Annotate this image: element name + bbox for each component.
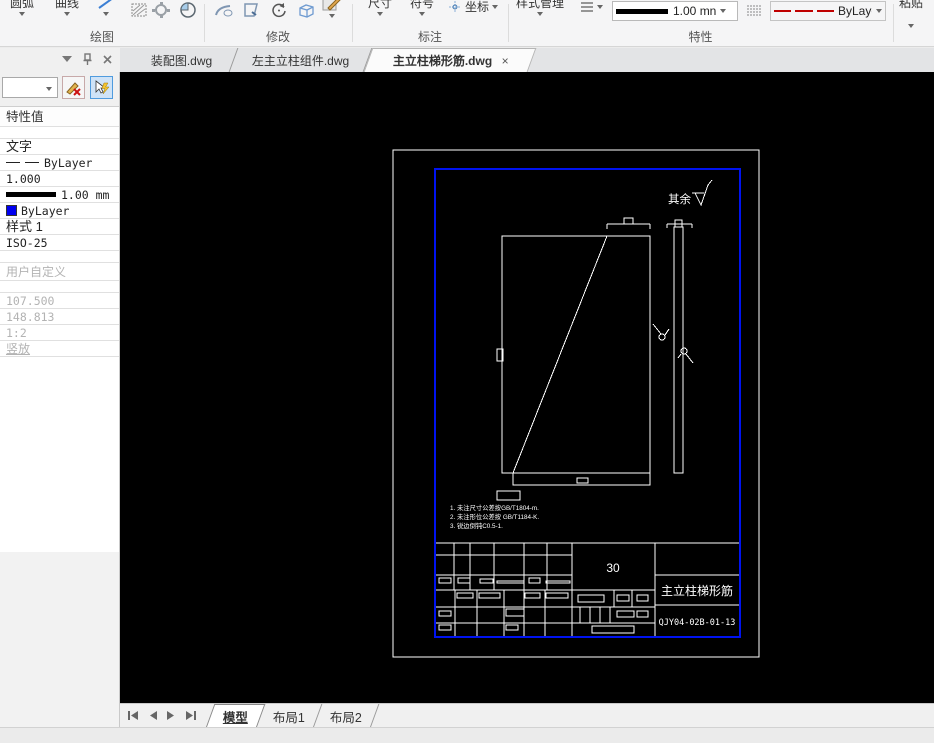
property-row-linetype-scale[interactable]: 1.000 xyxy=(0,171,119,187)
linetype-value: ByLayer xyxy=(838,4,872,18)
property-value: 148.813 xyxy=(6,309,54,325)
arc-button-label: 圆弧 xyxy=(10,0,34,10)
cad-drawing: 其余 1. 未注尺寸公差按GB/T1804-m. 2. 未注形位公差按 GB/T… xyxy=(120,72,934,703)
palette-empty-area xyxy=(0,552,119,727)
paste-button-label: 粘贴 xyxy=(899,0,923,10)
layout-tab-label: 布局2 xyxy=(330,706,362,725)
style-manager-button[interactable]: 样式管理 xyxy=(516,0,564,16)
doc-tab-trapezoid-rib[interactable]: 主立柱梯形筋.dwg × xyxy=(364,48,537,72)
trim-button[interactable] xyxy=(242,2,262,22)
doc-tab-left-column[interactable]: 左主立柱组件.dwg xyxy=(230,48,373,72)
multiline-icon xyxy=(746,4,762,17)
3d-box-button[interactable] xyxy=(296,2,317,22)
curve-button[interactable]: 曲线 xyxy=(55,0,79,16)
pin-icon[interactable] xyxy=(83,53,92,65)
property-row-blank xyxy=(0,281,119,293)
property-value: 竖放 xyxy=(6,341,30,357)
tab-layout1[interactable]: 布局1 xyxy=(257,704,323,728)
ribbon-group-properties: 样式管理 1.00 mn ByLayer 特性 xyxy=(508,0,893,47)
region-button[interactable] xyxy=(152,2,170,21)
property-row-blank xyxy=(0,251,119,263)
lineweight-dropdown[interactable]: 1.00 mn xyxy=(612,1,738,21)
chevron-down-icon xyxy=(876,9,882,13)
last-tab-icon[interactable] xyxy=(185,711,196,720)
document-tab-bar: 装配图.dwg 左主立柱组件.dwg 主立柱梯形筋.dwg × xyxy=(120,48,934,72)
status-bar xyxy=(0,727,934,743)
symbol-button-label: 符号 xyxy=(410,0,434,10)
edit-polyline-button[interactable] xyxy=(322,0,342,18)
property-row-blank xyxy=(0,127,119,139)
fillet-icon xyxy=(214,2,234,19)
dimension-button-label: 尺寸 xyxy=(368,0,392,10)
linetype-dash xyxy=(795,10,812,12)
selection-filter-combobox[interactable] xyxy=(2,77,58,98)
chevron-down-icon xyxy=(419,12,425,16)
next-tab-icon[interactable] xyxy=(167,711,175,720)
palette-menu-chevron-icon[interactable] xyxy=(62,56,72,62)
modify-group-label: 修改 xyxy=(204,28,352,45)
property-grid-empty xyxy=(0,357,119,567)
property-row-custom-2[interactable]: 148.813 xyxy=(0,309,119,325)
property-value: 样式 1 xyxy=(6,219,43,235)
property-value: ByLayer xyxy=(21,203,69,219)
cursor-lightning-icon xyxy=(93,80,110,96)
note-line-2: 2. 未注形位公差按 GB/T1184-K. xyxy=(450,512,539,521)
property-value: ISO-25 xyxy=(6,235,48,251)
gear-icon xyxy=(152,2,170,18)
note-line-1: 1. 未注尺寸公差按GB/T1804-m. xyxy=(450,503,539,512)
list-lines-icon xyxy=(580,1,594,13)
lineweight-value: 1.00 mn xyxy=(673,4,716,18)
linetype-dash xyxy=(774,10,791,12)
tab-layout2[interactable]: 布局2 xyxy=(314,704,380,728)
lineweight-swatch xyxy=(616,9,668,14)
ribbon-group-paste: 粘贴 xyxy=(893,0,934,47)
property-value: 1.00 mm xyxy=(61,187,109,203)
chevron-down-icon xyxy=(103,12,109,16)
palette-title-bar xyxy=(0,48,120,72)
symbol-button[interactable]: 符号 xyxy=(410,0,434,16)
tab-model[interactable]: 模型 xyxy=(206,704,266,728)
doc-tab-label: 装配图.dwg xyxy=(141,52,222,69)
ribbon-group-annotate: 尺寸 符号 坐标 标注 xyxy=(352,0,508,47)
dimension-button[interactable]: 尺寸 xyxy=(368,0,392,16)
properties-palette: 特性值 文字 ByLayer 1.000 1.00 mm ByLayer 样式 … xyxy=(0,72,120,727)
layout-tab-label: 模型 xyxy=(223,707,248,726)
quick-select-button[interactable] xyxy=(90,76,113,99)
doc-tab-label: 主立柱梯形筋.dwg xyxy=(383,52,502,69)
paper-outer-frame xyxy=(393,150,759,657)
hatch-icon xyxy=(130,2,148,18)
ribbon-toolbar: 圆弧 曲线 绘图 xyxy=(0,0,934,47)
chevron-down-icon xyxy=(597,5,603,9)
revision-cloud-button[interactable] xyxy=(178,2,198,22)
ribbon-group-draw: 圆弧 曲线 绘图 xyxy=(0,0,204,47)
property-value: 107.500 xyxy=(6,293,54,309)
pencil-x-icon xyxy=(65,80,82,96)
model-space-canvas[interactable]: 其余 1. 未注尺寸公差按GB/T1804-m. 2. 未注形位公差按 GB/T… xyxy=(120,72,934,703)
cad-application-window: 圆弧 曲线 绘图 xyxy=(0,0,934,743)
note-line-3: 3. 锐边倒钝C0.5-1. xyxy=(450,521,503,530)
property-label: 文字 xyxy=(6,139,32,155)
property-value: 1:2 xyxy=(6,325,27,341)
property-grid-header: 特性值 xyxy=(0,107,119,127)
property-row-lineweight[interactable]: 1.00 mm xyxy=(0,187,119,203)
property-value: ByLayer xyxy=(44,155,92,171)
clear-edit-button[interactable] xyxy=(62,76,85,99)
drawing-blue-frame xyxy=(435,169,740,637)
line-icon xyxy=(97,0,115,10)
linetype-dash xyxy=(817,10,834,12)
lineweight-bar xyxy=(6,192,56,197)
main-view-diagonal xyxy=(513,236,607,473)
first-tab-icon[interactable] xyxy=(128,711,139,720)
arc-button[interactable]: 圆弧 xyxy=(10,0,34,16)
property-row-custom-3[interactable]: 1:2 xyxy=(0,325,119,341)
chevron-down-icon xyxy=(720,9,726,13)
layer-list-button[interactable] xyxy=(580,1,603,13)
chevron-down-icon xyxy=(908,24,914,28)
property-grid: 特性值 文字 ByLayer 1.000 1.00 mm ByLayer 样式 … xyxy=(0,106,119,567)
coordinate-button[interactable]: 坐标 xyxy=(448,0,498,14)
property-row-custom-header: 用户自定义 xyxy=(0,263,119,281)
linetype-dash xyxy=(6,162,20,163)
palette-toolbar xyxy=(0,74,120,102)
line-button[interactable] xyxy=(97,0,115,16)
fillet-button[interactable] xyxy=(214,2,234,22)
property-row-text-category[interactable]: 文字 xyxy=(0,139,119,155)
linetype-dropdown[interactable]: ByLayer xyxy=(770,1,886,21)
layout-tab-label: 布局1 xyxy=(273,706,305,725)
rotate-button[interactable] xyxy=(270,2,289,22)
chevron-down-icon xyxy=(377,12,383,16)
pie-icon xyxy=(178,2,198,19)
doc-tab-label: 左主立柱组件.dwg xyxy=(242,52,359,69)
part-name-text: 主立柱梯形筋 xyxy=(661,583,733,598)
property-label: 用户自定义 xyxy=(6,263,66,281)
property-row-custom-1[interactable]: 107.500 xyxy=(0,293,119,309)
property-row-linetype[interactable]: ByLayer xyxy=(0,155,119,171)
layout-tab-strip: 模型 布局1 布局2 xyxy=(120,703,934,727)
color-swatch xyxy=(6,205,17,216)
chevron-down-icon xyxy=(46,87,52,91)
coordinate-button-label: 坐标 xyxy=(465,0,489,14)
linetype-dash xyxy=(25,162,39,163)
chevron-down-icon xyxy=(492,5,498,9)
rotate-icon xyxy=(270,2,289,19)
properties-group-label: 特性 xyxy=(508,28,893,45)
material-text: 30 xyxy=(606,561,620,575)
coordinate-icon xyxy=(448,0,463,14)
paste-button[interactable]: 粘贴 xyxy=(899,0,923,28)
previous-tab-icon[interactable] xyxy=(149,711,157,720)
hatch-button[interactable] xyxy=(130,2,148,21)
property-value: 1.000 xyxy=(6,171,41,187)
property-row-style[interactable]: 样式 1 xyxy=(0,219,119,235)
draw-group-label: 绘图 xyxy=(0,28,204,45)
chevron-down-icon xyxy=(64,12,70,16)
annotate-group-label: 标注 xyxy=(352,28,508,45)
chevron-down-icon xyxy=(19,12,25,16)
property-row-color[interactable]: ByLayer xyxy=(0,203,119,219)
drawing-number-text: QJY04-02B-01-13 xyxy=(659,618,736,628)
lineweight-settings-button[interactable] xyxy=(746,4,762,20)
trim-icon xyxy=(242,2,262,19)
close-icon[interactable] xyxy=(103,55,112,64)
main-view-outline xyxy=(502,236,650,473)
style-manager-label: 样式管理 xyxy=(516,0,564,10)
property-row-custom-4[interactable]: 竖放 xyxy=(0,341,119,357)
chevron-down-icon xyxy=(537,12,543,16)
chevron-down-icon xyxy=(329,14,335,18)
surface-note-text: 其余 xyxy=(668,192,691,206)
doc-tab-assembly[interactable]: 装配图.dwg xyxy=(126,48,239,72)
cube-icon xyxy=(296,2,317,19)
edit-pencil-icon xyxy=(322,0,342,12)
curve-button-label: 曲线 xyxy=(55,0,79,10)
close-tab-icon[interactable]: × xyxy=(502,54,509,68)
property-row-dimstyle[interactable]: ISO-25 xyxy=(0,235,119,251)
ribbon-group-modify: 修改 xyxy=(204,0,352,47)
